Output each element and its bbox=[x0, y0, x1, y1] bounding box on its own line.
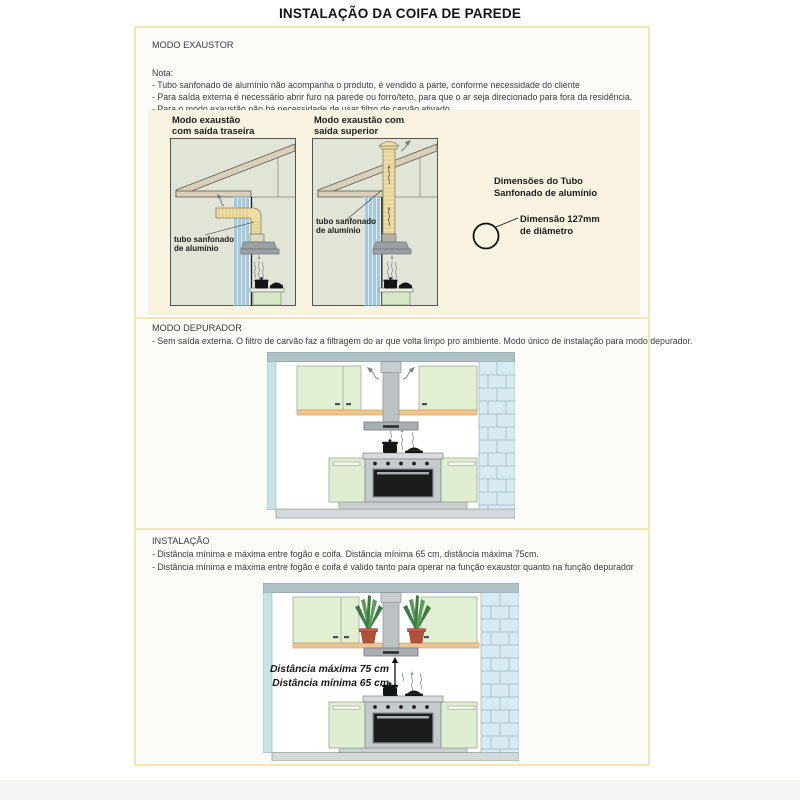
nota-label: Nota: bbox=[152, 68, 173, 78]
section-divider bbox=[136, 317, 648, 319]
brick-wall bbox=[481, 593, 519, 753]
note-line: - Para saída externa é necessário abrir … bbox=[152, 92, 632, 102]
hood bbox=[241, 242, 279, 254]
note-line: - Sem saída externa. O filtro de carvão … bbox=[152, 336, 692, 346]
section-heading-exaustor: MODO EXAUSTOR bbox=[152, 40, 234, 50]
page-title: INSTALAÇÃO DA COIFA DE PAREDE bbox=[0, 6, 800, 21]
kitchen-illustration-instalacao: Distância máxima 75 cm Distância mínima … bbox=[263, 583, 519, 761]
exhaust-diagram-panel: Modo exaustão com saída traseira bbox=[148, 110, 640, 315]
leader-line bbox=[496, 218, 518, 227]
note-line: - Tubo sanfonado de alumínio não acompan… bbox=[152, 80, 580, 90]
diagram-rear-outlet: tubo sanfonado de alumínio bbox=[170, 138, 296, 306]
note-line: - Distância mínima e máxima entre fogão … bbox=[152, 549, 539, 559]
tube-label-line1: tubo sanfonado bbox=[174, 235, 234, 244]
dims-heading-line2: Sanfonado de alumínio bbox=[494, 187, 597, 198]
diagram-title-top-line2: saída superior bbox=[314, 125, 404, 136]
distance-max-label: Distância máxima 75 cm bbox=[270, 664, 389, 675]
section-heading-instalacao: INSTALAÇÃO bbox=[152, 536, 210, 546]
diagram-title-top-line1: Modo exaustão com bbox=[314, 114, 404, 125]
tube-label-line2: de alumínio bbox=[174, 244, 219, 253]
dims-heading-line1: Dimensões do Tubo bbox=[494, 175, 583, 186]
section-divider bbox=[136, 528, 648, 530]
diagram-title-rear-line2: com saída traseira bbox=[172, 125, 254, 136]
diagram-title-top: Modo exaustão com saída superior bbox=[314, 114, 404, 136]
diagram-title-rear: Modo exaustão com saída traseira bbox=[172, 114, 254, 136]
manual-content-box: MODO EXAUSTOR Nota: - Tubo sanfonado de … bbox=[134, 26, 650, 766]
section-heading-depurador: MODO DEPURADOR bbox=[152, 323, 242, 333]
dims-label-line2: de diâmetro bbox=[520, 225, 573, 236]
kitchen-illustration-depurador bbox=[267, 352, 515, 520]
dims-label-line1: Dimensão 127mm bbox=[520, 213, 600, 224]
page-edge bbox=[0, 780, 800, 800]
diagram-title-rear-line1: Modo exaustão bbox=[172, 114, 254, 125]
tube-dimensions-callout: Dimensões do Tubo Sanfonado de alumínio … bbox=[464, 172, 650, 268]
diagram-top-outlet: tubo sanfonado de alumínio bbox=[312, 138, 438, 306]
tube-label-line2: de alumínio bbox=[316, 226, 361, 235]
tube-label-line1: tubo sanfonado bbox=[316, 217, 376, 226]
tube-diameter-circle bbox=[474, 224, 499, 249]
brick-wall bbox=[479, 362, 515, 510]
note-line: - Distância mínima e máxima entre fogão … bbox=[152, 562, 634, 572]
distance-min-label: Distância mínima 65 cm bbox=[272, 678, 389, 689]
